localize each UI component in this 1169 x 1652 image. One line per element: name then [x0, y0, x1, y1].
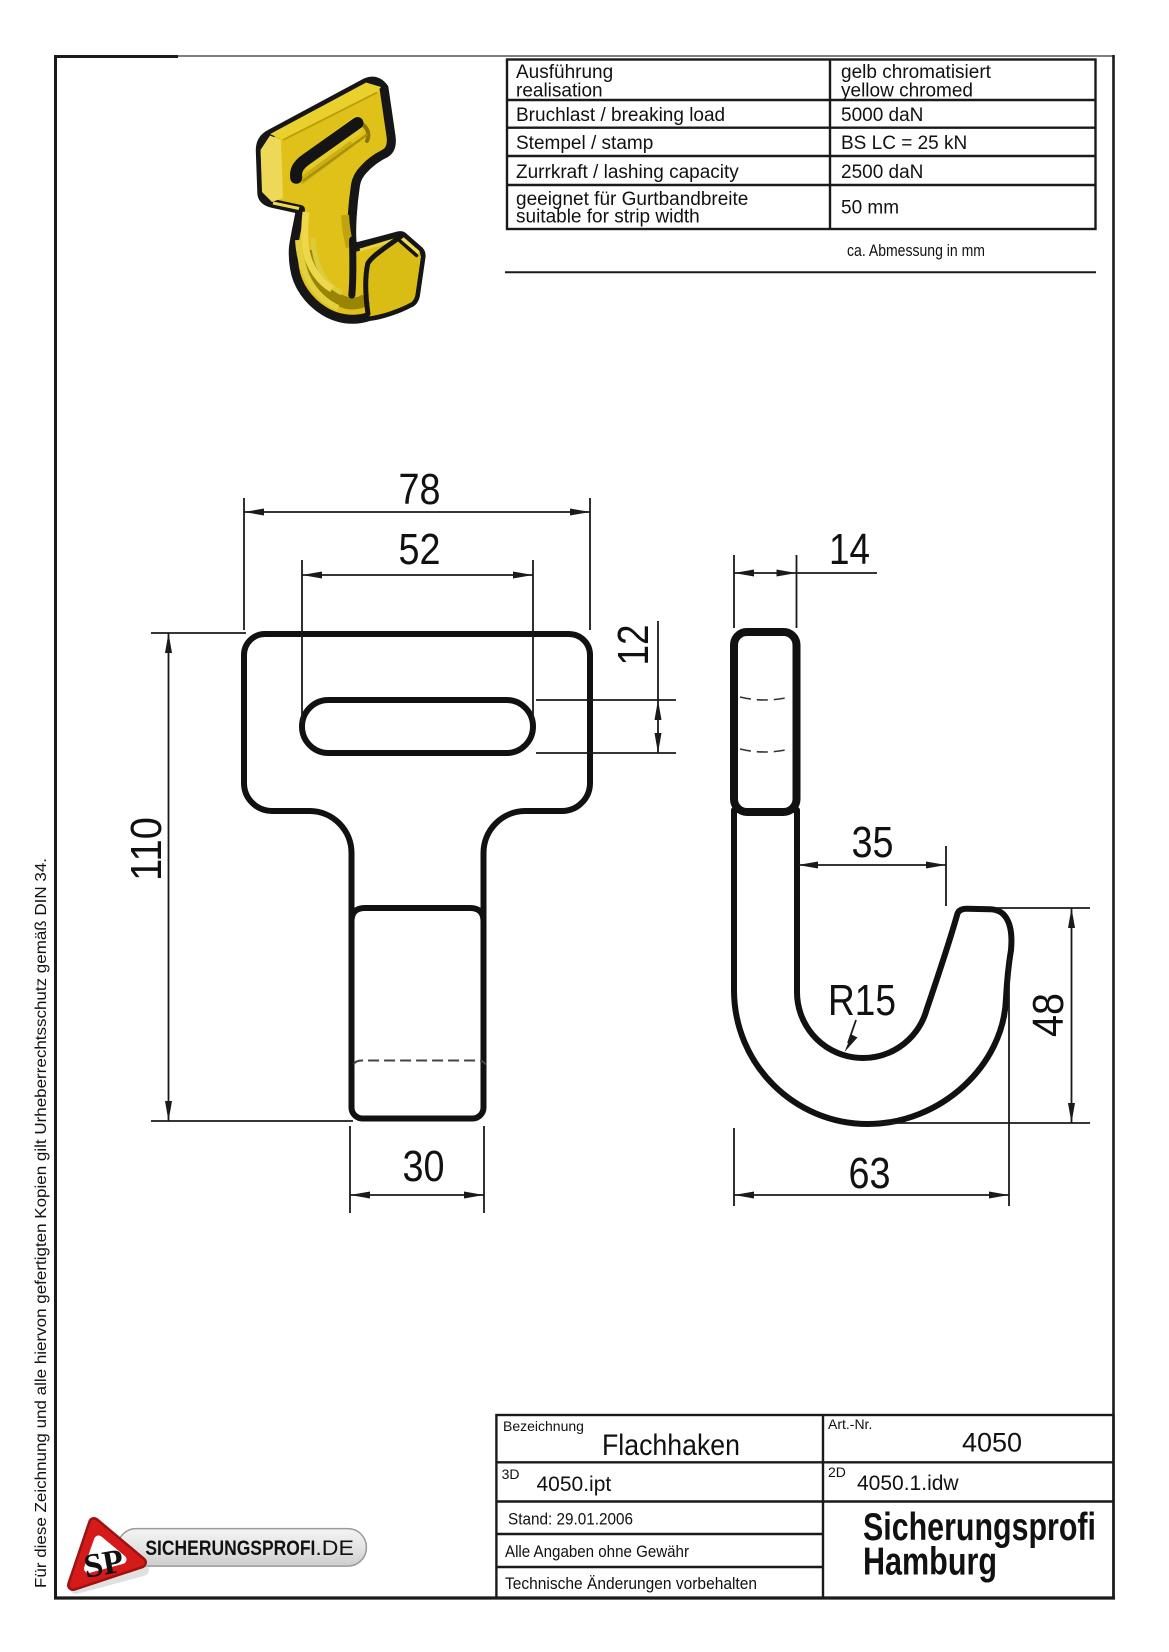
svg-text:14: 14 — [829, 525, 870, 574]
svg-text:Bezeichnung: Bezeichnung — [503, 1418, 584, 1434]
svg-text:4050.ipt: 4050.ipt — [537, 1473, 612, 1496]
svg-text:Stand: 29.01.2006: Stand: 29.01.2006 — [508, 1510, 633, 1529]
svg-text:Flachhaken: Flachhaken — [602, 1429, 740, 1462]
svg-text:Zurrkraft / lashing capacity: Zurrkraft / lashing capacity — [516, 162, 739, 183]
svg-text:R15: R15 — [828, 976, 896, 1025]
svg-text:50 mm: 50 mm — [841, 198, 899, 219]
svg-text:.DE: .DE — [315, 1537, 354, 1560]
svg-text:yellow chromed: yellow chromed — [841, 81, 973, 102]
svg-text:52: 52 — [399, 525, 441, 574]
svg-text:4050: 4050 — [962, 1428, 1022, 1458]
svg-text:48: 48 — [1024, 993, 1073, 1037]
svg-text:35: 35 — [852, 818, 894, 867]
svg-text:Alle Angaben ohne Gewähr: Alle Angaben ohne Gewähr — [505, 1542, 689, 1561]
svg-text:Für diese Zeichnung und alle h: Für diese Zeichnung und alle hiervon gef… — [33, 858, 50, 1588]
svg-text:SP: SP — [81, 1543, 127, 1586]
svg-text:2D: 2D — [828, 1464, 846, 1480]
svg-text:realisation: realisation — [516, 81, 603, 102]
svg-text:3D: 3D — [502, 1466, 520, 1482]
svg-text:4050.1.idw: 4050.1.idw — [857, 1472, 959, 1495]
svg-text:Stempel / stamp: Stempel / stamp — [516, 133, 653, 154]
svg-text:Hamburg: Hamburg — [863, 1541, 997, 1584]
svg-text:ca. Abmessung in mm: ca. Abmessung in mm — [847, 242, 985, 260]
svg-text:12: 12 — [609, 625, 658, 666]
svg-text:Bruchlast / breaking load: Bruchlast / breaking load — [516, 105, 725, 126]
svg-text:SICHERUNGSPROFI: SICHERUNGSPROFI — [145, 1537, 315, 1560]
svg-text:63: 63 — [849, 1149, 891, 1198]
svg-text:110: 110 — [122, 817, 171, 881]
svg-text:suitable for strip width: suitable for strip width — [516, 207, 700, 228]
svg-text:Art.-Nr.: Art.-Nr. — [828, 1416, 872, 1432]
svg-text:78: 78 — [399, 465, 441, 514]
svg-text:BS LC = 25 kN: BS LC = 25 kN — [841, 133, 967, 154]
svg-text:2500 daN: 2500 daN — [841, 162, 923, 183]
svg-text:5000 daN: 5000 daN — [841, 105, 923, 126]
svg-text:Technische Änderungen vorbehal: Technische Änderungen vorbehalten — [505, 1574, 757, 1593]
svg-text:30: 30 — [403, 1142, 445, 1191]
